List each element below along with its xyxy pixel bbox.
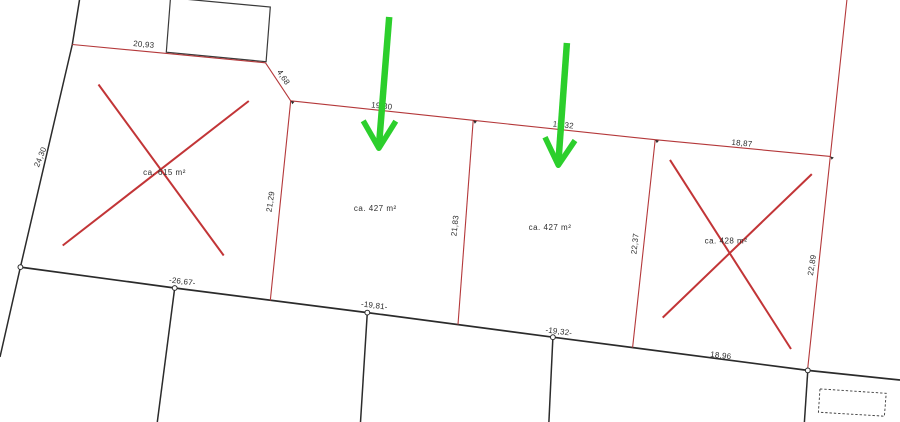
svg-text:-19,32-: -19,32- <box>545 325 573 337</box>
svg-text:18,96: 18,96 <box>710 350 732 361</box>
svg-text:ca. 428 m²: ca. 428 m² <box>705 236 748 245</box>
svg-text:ca. 427 m²: ca. 427 m² <box>354 204 397 213</box>
svg-text:-19,81-: -19,81- <box>360 299 388 311</box>
svg-text:20,93: 20,93 <box>133 39 155 50</box>
svg-text:ca. 427 m²: ca. 427 m² <box>529 223 572 232</box>
svg-text:4,68: 4,68 <box>275 68 292 87</box>
svg-text:ca. 615 m²: ca. 615 m² <box>143 168 186 177</box>
svg-text:22,37: 22,37 <box>629 232 640 254</box>
svg-text:22,89: 22,89 <box>806 254 818 277</box>
svg-text:-26,67-: -26,67- <box>168 275 196 287</box>
svg-text:21,83: 21,83 <box>449 214 460 236</box>
svg-text:21,29: 21,29 <box>265 190 277 212</box>
